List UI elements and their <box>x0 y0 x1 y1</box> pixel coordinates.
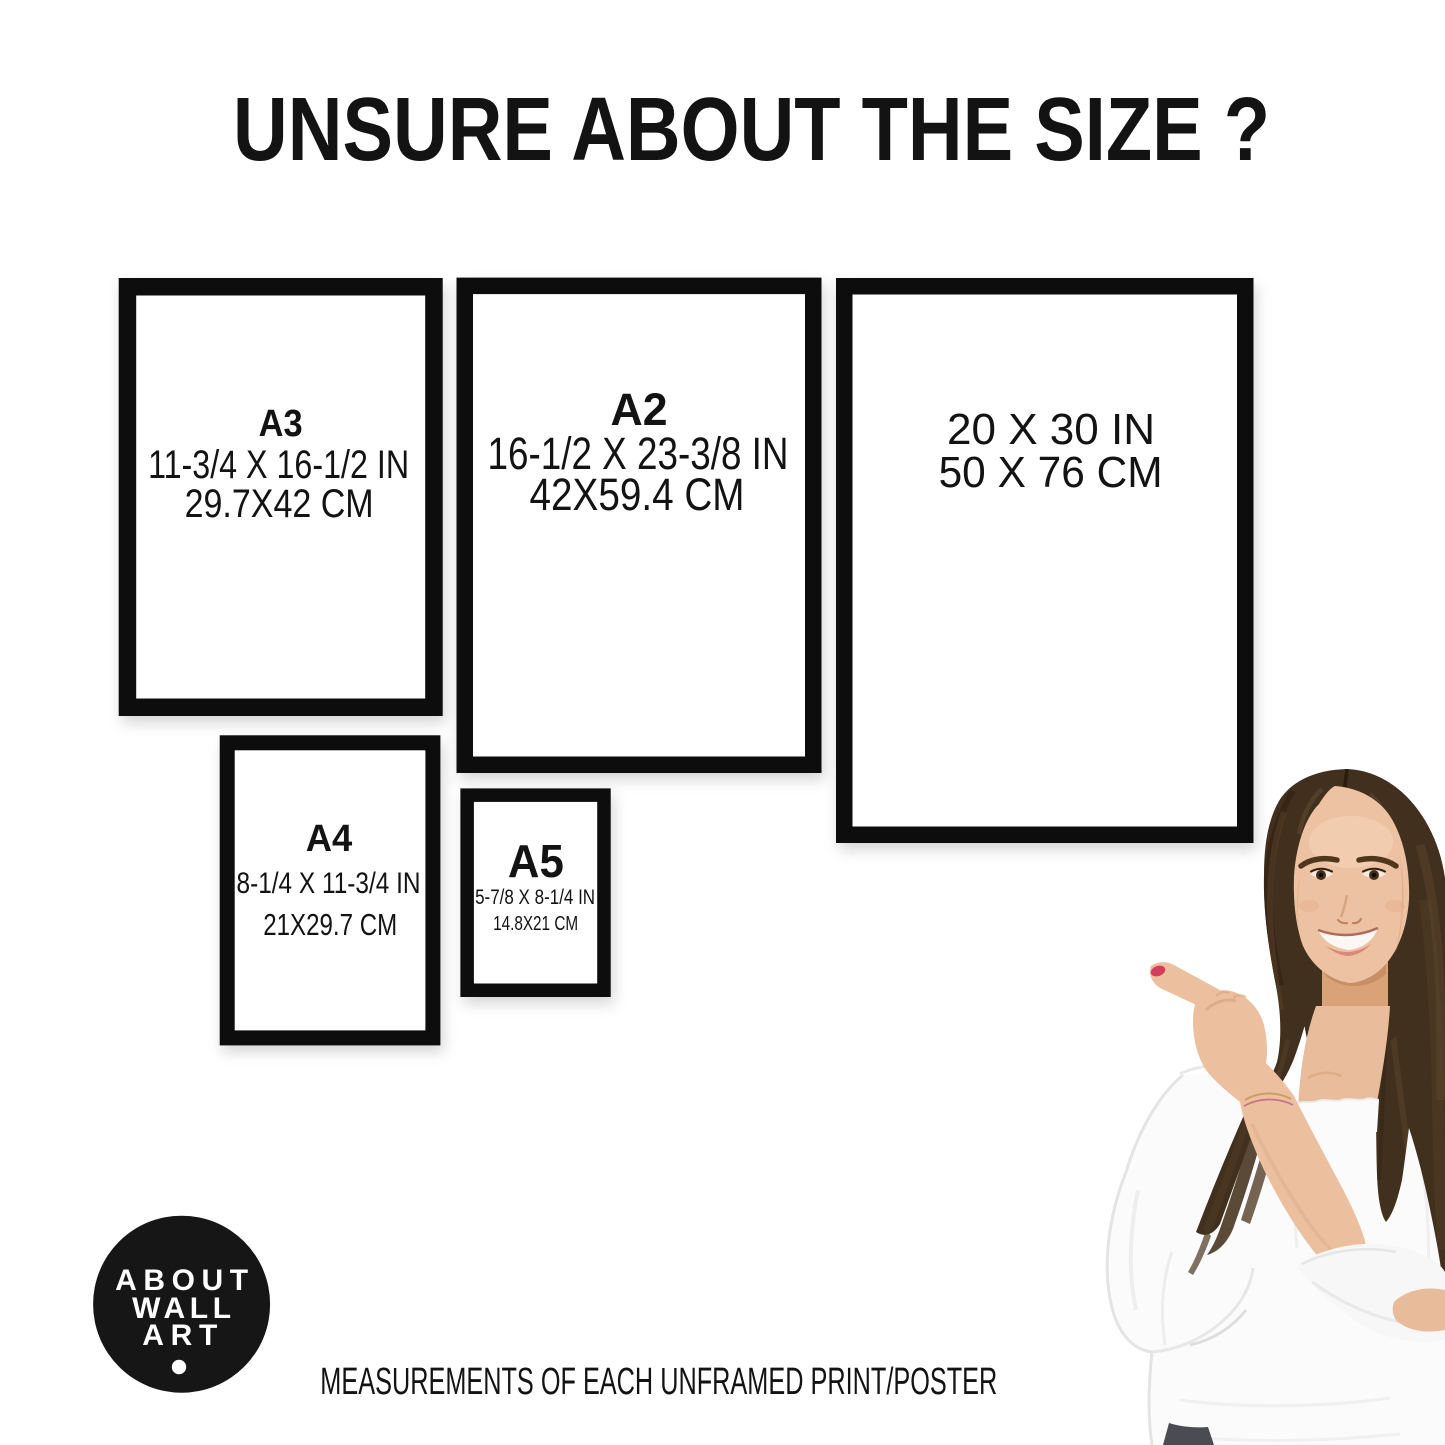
svg-text:29.7X42 CM: 29.7X42 CM <box>185 482 374 526</box>
svg-text:14.8X21 CM: 14.8X21 CM <box>493 913 578 935</box>
svg-text:11-3/4 X 16-1/2 IN: 11-3/4 X 16-1/2 IN <box>148 443 409 487</box>
svg-text:MEASUREMENTS OF EACH UNFRAMED: MEASUREMENTS OF EACH UNFRAMED PRINT/POST… <box>320 1361 997 1403</box>
svg-text:42X59.4 CM: 42X59.4 CM <box>530 469 745 520</box>
svg-text:ART: ART <box>142 1319 217 1352</box>
svg-text:A3: A3 <box>259 403 303 445</box>
svg-text:A5: A5 <box>508 835 564 887</box>
svg-text:50 X 76 CM: 50 X 76 CM <box>939 448 1163 497</box>
svg-text:20 X 30 IN: 20 X 30 IN <box>947 405 1155 454</box>
svg-text:8-1/4 X 11-3/4 IN: 8-1/4 X 11-3/4 IN <box>237 867 421 900</box>
svg-text:UNSURE ABOUT THE SIZE ?: UNSURE ABOUT THE SIZE ? <box>233 80 1270 180</box>
svg-text:5-7/8 X 8-1/4 IN: 5-7/8 X 8-1/4 IN <box>475 886 595 909</box>
svg-text:A4: A4 <box>306 818 353 860</box>
svg-text:21X29.7 CM: 21X29.7 CM <box>263 907 397 942</box>
